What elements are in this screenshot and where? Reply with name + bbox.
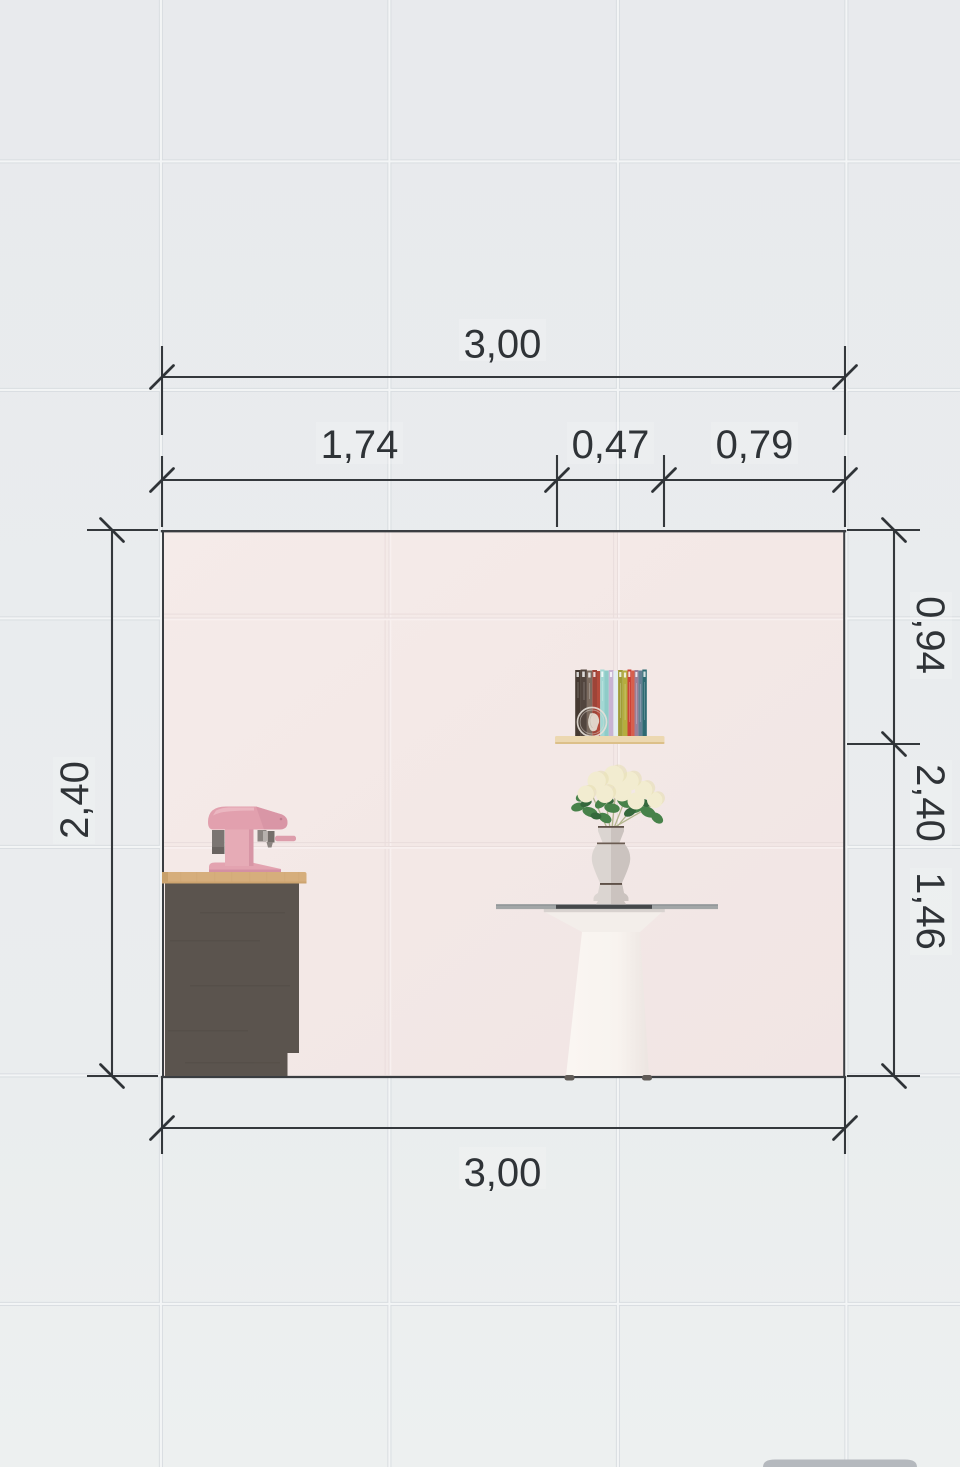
svg-text:2,40: 2,40 (908, 764, 952, 842)
svg-text:1,46: 1,46 (908, 872, 952, 950)
svg-text:1,74: 1,74 (321, 423, 399, 467)
svg-text:0,94: 0,94 (908, 596, 952, 674)
svg-text:3,00: 3,00 (464, 323, 542, 367)
svg-text:0,47: 0,47 (572, 423, 650, 467)
svg-text:3,00: 3,00 (464, 1151, 542, 1195)
svg-text:0,79: 0,79 (716, 423, 794, 467)
svg-text:2,40: 2,40 (53, 761, 97, 839)
